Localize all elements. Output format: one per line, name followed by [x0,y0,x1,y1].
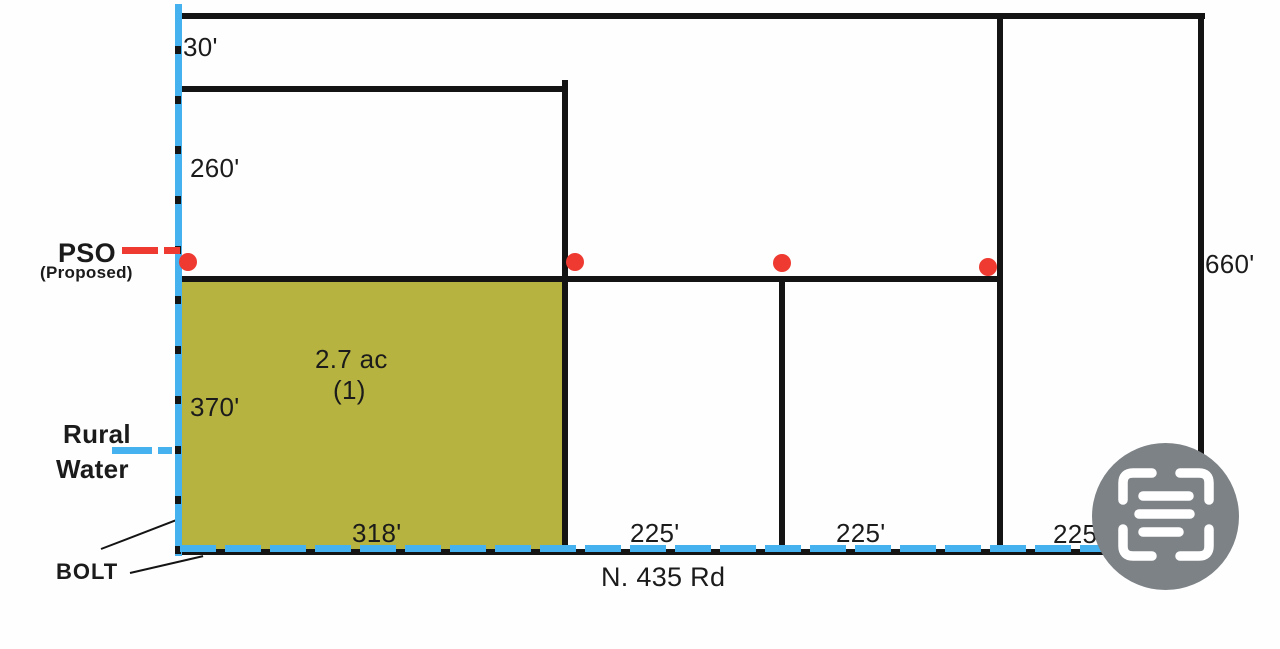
lot-divider-1 [562,80,568,555]
rural-water-line-west [175,4,182,556]
upper-parcel-south-line [178,86,568,92]
pso-sub-label: (Proposed) [40,264,133,282]
bolt-leader-line-lower [130,555,204,574]
dim-label-upper-parcel: 260' [190,155,240,182]
dim-label-lot1-depth: 370' [190,394,240,421]
north-boundary-line [178,13,1205,19]
lots-north-line [178,276,1002,282]
bolt-leader-line-upper [101,519,177,550]
lot1-area-label: 2.7 ac [315,346,388,373]
pso-point [179,253,197,271]
lot-divider-3 [997,13,1003,555]
dim-label-north-strip: 30' [183,34,218,61]
scan-document-icon [1092,443,1239,590]
rural-water-line-road [180,545,1204,552]
dim-label-east-boundary: 660' [1205,251,1255,278]
plat-diagram: 30' 260' 370' 318' 660' 225' 225' 225' 2… [0,0,1280,649]
pso-point [773,254,791,272]
dim-label-lot-frontage-1: 225' [630,520,680,547]
pso-leader-dash [122,247,180,254]
rural-water-label-line2: Water [56,456,129,483]
bolt-label: BOLT [56,560,118,583]
lot1-number-label: (1) [333,377,366,404]
water-line-tick-marks [175,4,181,556]
dim-label-lot1-frontage: 318' [352,520,402,547]
road-name-label: N. 435 Rd [601,563,725,591]
lot-divider-2 [779,278,785,555]
rural-water-label-line1: Rural [63,421,131,448]
pso-point [979,258,997,276]
pso-point [566,253,584,271]
dim-label-lot-frontage-2: 225' [836,520,886,547]
